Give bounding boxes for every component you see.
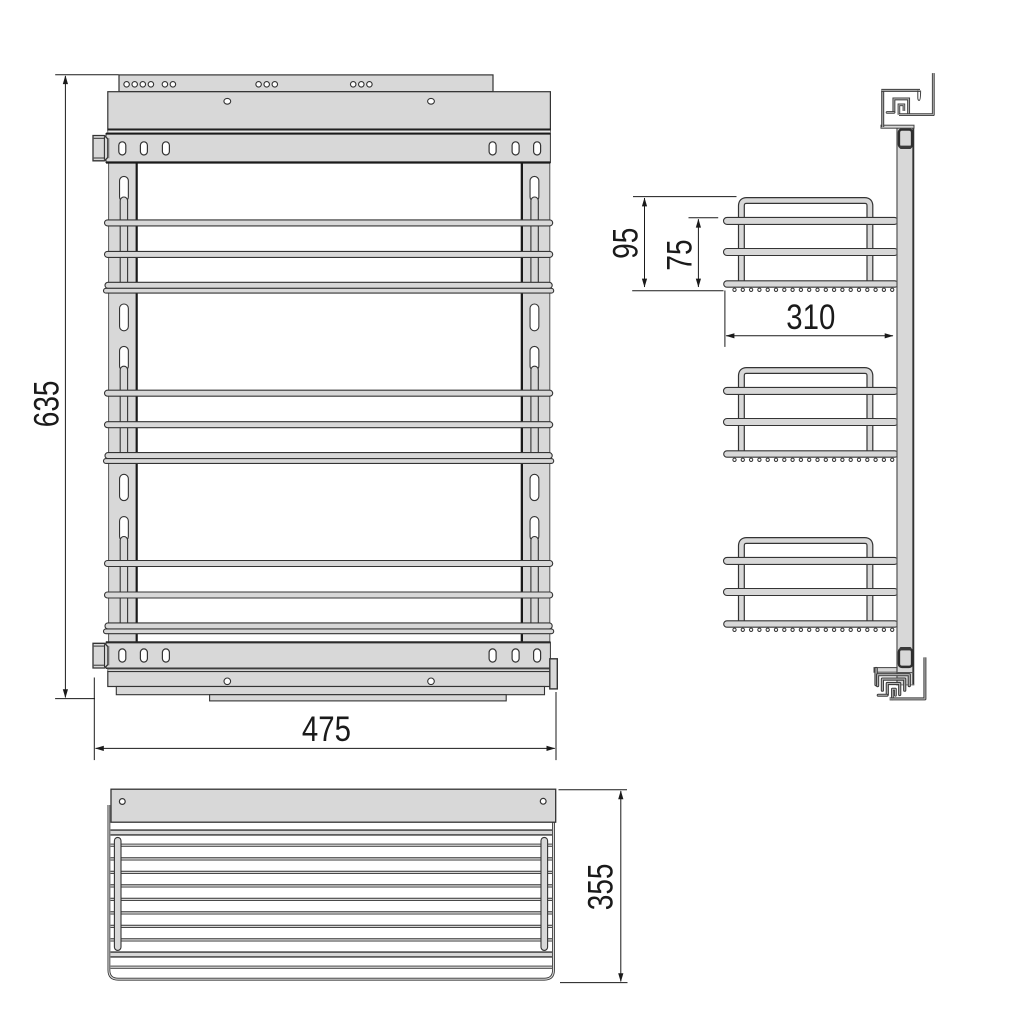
svg-text:355: 355 — [580, 864, 620, 911]
svg-text:75: 75 — [660, 239, 700, 270]
svg-text:635: 635 — [27, 381, 67, 428]
svg-text:95: 95 — [606, 228, 646, 259]
svg-text:310: 310 — [786, 298, 835, 337]
svg-text:475: 475 — [302, 710, 351, 749]
